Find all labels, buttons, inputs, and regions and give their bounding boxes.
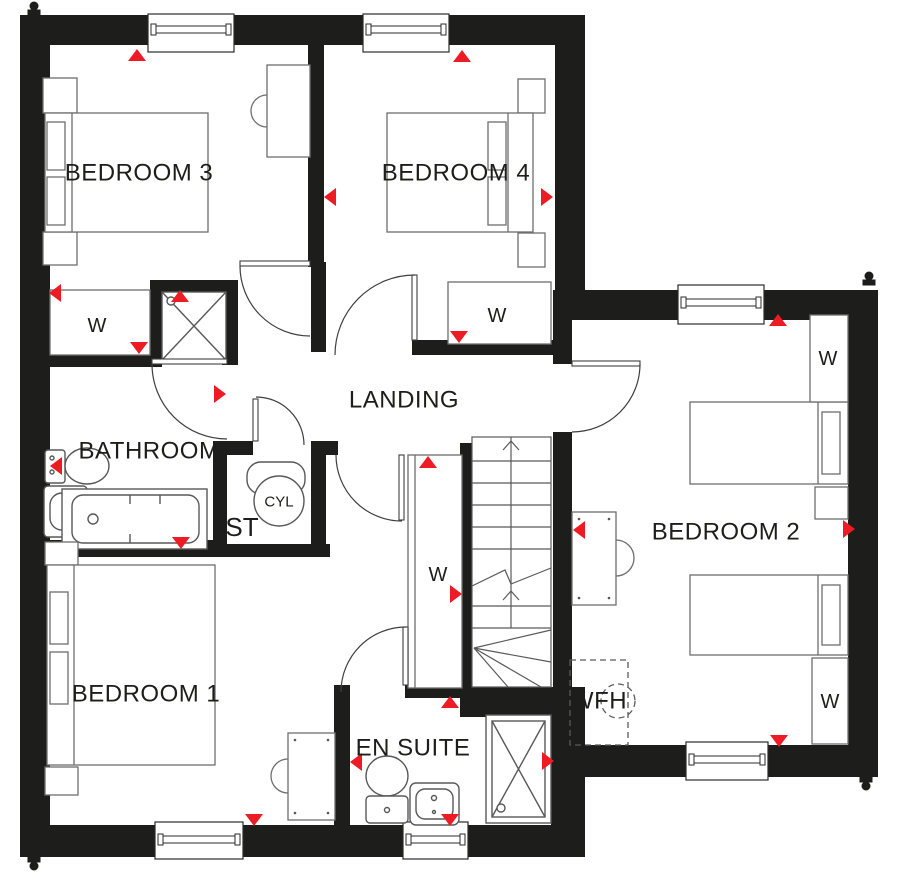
- marker-triangle-right: [541, 188, 553, 206]
- bed-bedroom1: [45, 542, 215, 795]
- label-bedroom2: BEDROOM 2: [652, 519, 801, 546]
- vent-icon: [28, 857, 40, 870]
- bedside-table: [43, 78, 77, 113]
- bedside-table: [45, 542, 78, 565]
- desk-bedroom4: [251, 65, 310, 157]
- door-bedroom2: [572, 361, 640, 432]
- label-wardrobe-bedroom1: W: [429, 564, 448, 586]
- pillow: [50, 652, 68, 704]
- wall-ensuite-right: [551, 713, 585, 829]
- wall-shower-right: [226, 280, 238, 355]
- label-wardrobe-bedroom2-bottom: W: [821, 691, 840, 713]
- label-wardrobe-bedroom3: W: [88, 315, 107, 337]
- vent-icon: [863, 273, 875, 286]
- marker-triangle-up: [453, 50, 471, 62]
- label-bedroom4: BEDROOM 4: [382, 160, 531, 187]
- marker-triangle-up: [128, 49, 146, 61]
- door-bedroom1: [336, 455, 404, 521]
- marker-triangle-left: [324, 188, 336, 206]
- wall-outer-east-upper: [555, 15, 585, 292]
- desk-bedroom1: [271, 733, 335, 820]
- wall-bed2-right: [848, 290, 878, 777]
- wall-st-right: [311, 441, 326, 557]
- window-bedroom4: [363, 14, 449, 52]
- window-ensuite: [403, 822, 468, 859]
- window-bedroom2-bottom: [686, 742, 768, 780]
- pillow: [822, 585, 840, 645]
- wall-outer-bottom: [20, 825, 585, 857]
- shower-bathroom: [162, 292, 226, 360]
- pillow: [822, 412, 840, 474]
- label-cylinder: CYL: [264, 494, 293, 511]
- label-store: ST: [225, 512, 258, 542]
- door-ensuite: [341, 627, 408, 692]
- label-bedroom3: BEDROOM 3: [65, 160, 214, 187]
- chair: [251, 95, 267, 127]
- bed-bedroom2-bottom: [690, 575, 848, 655]
- window-bedroom1: [155, 822, 243, 859]
- wall-outer-top: [20, 15, 585, 45]
- vent-icon: [860, 777, 872, 790]
- floorplan-page: BEDROOM 3 BEDROOM 4 BEDROOM 2 BEDROOM 1 …: [0, 0, 899, 873]
- chair: [616, 540, 634, 576]
- label-bedroom1: BEDROOM 1: [72, 681, 221, 708]
- label-wardrobe-bedroom4: W: [488, 305, 507, 327]
- bedside-table: [518, 233, 545, 267]
- label-ensuite: EN SUITE: [356, 735, 471, 762]
- label-landing: LANDING: [349, 387, 459, 414]
- bedside-table: [518, 79, 545, 113]
- bedside-table: [43, 232, 77, 265]
- bedside-table-bedroom2: [815, 487, 848, 519]
- pillow: [47, 177, 65, 225]
- marker-triangle-down: [245, 814, 263, 826]
- toilet-ensuite: [366, 756, 408, 823]
- wall-stairs-right: [553, 432, 572, 712]
- shower-ensuite: [486, 715, 551, 823]
- door-bedroom4: [335, 275, 417, 355]
- label-wardrobe-bedroom2-top: W: [819, 348, 838, 370]
- pillow: [50, 592, 68, 644]
- marker-triangle-right: [214, 385, 226, 403]
- stairs: [472, 437, 551, 687]
- chair: [271, 759, 288, 793]
- wall-shower-top: [150, 280, 238, 292]
- label-bathroom: BATHROOM: [79, 438, 220, 465]
- pillow: [47, 122, 65, 170]
- wall-shower-left: [150, 280, 162, 367]
- wall-bed1-right: [334, 685, 350, 825]
- door-store: [253, 397, 304, 445]
- vent-icon: [28, 3, 40, 16]
- stair-winders: [474, 630, 551, 687]
- floorplan-drawing: BEDROOM 3 BEDROOM 4 BEDROOM 2 BEDROOM 1 …: [0, 0, 899, 873]
- window-bedroom3: [148, 14, 234, 52]
- label-wfh: WFH: [571, 688, 627, 715]
- wall-nook-landing: [311, 262, 326, 352]
- window-bedroom2-top: [678, 285, 764, 324]
- bed-bedroom2-top: [690, 402, 848, 484]
- bedside-table: [45, 767, 78, 795]
- wall-bed2-door-upper: [553, 318, 572, 364]
- door-bedroom3: [240, 261, 310, 336]
